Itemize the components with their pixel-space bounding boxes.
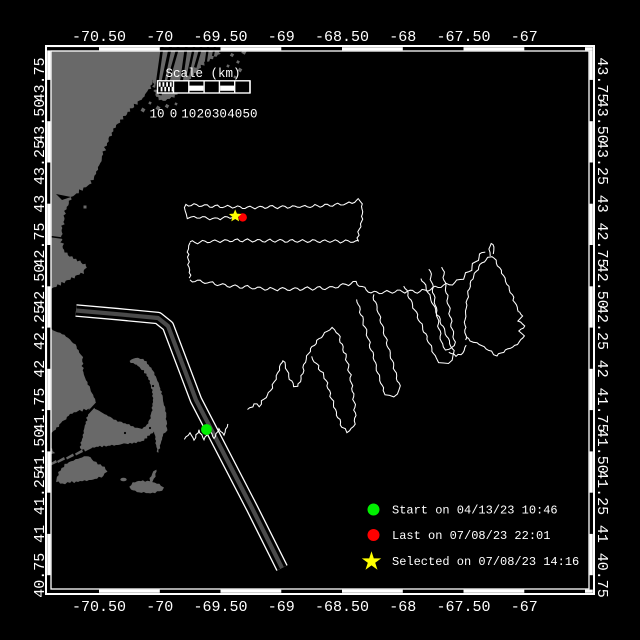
svg-text:-68: -68	[389, 599, 416, 616]
svg-text:40: 40	[227, 108, 242, 122]
svg-text:40.75: 40.75	[32, 553, 49, 598]
svg-text:42.50: 42.50	[32, 264, 49, 309]
svg-text:43.75: 43.75	[593, 57, 610, 102]
svg-text:20: 20	[197, 108, 212, 122]
svg-text:43.50: 43.50	[32, 99, 49, 144]
svg-text:Selected on 07/08/23 14:16: Selected on 07/08/23 14:16	[392, 555, 579, 569]
svg-text:0: 0	[170, 108, 178, 122]
svg-text:-70.50: -70.50	[72, 29, 126, 46]
svg-text:-69.50: -69.50	[193, 599, 247, 616]
svg-text:-67.50: -67.50	[436, 599, 490, 616]
svg-text:-69.50: -69.50	[193, 29, 247, 46]
svg-text:-70.50: -70.50	[72, 599, 126, 616]
svg-text:-70: -70	[146, 29, 173, 46]
svg-text:-70: -70	[146, 599, 173, 616]
svg-text:41.75: 41.75	[32, 388, 49, 433]
svg-text:42: 42	[593, 360, 610, 378]
svg-text:42.25: 42.25	[593, 305, 610, 350]
svg-text:42.25: 42.25	[32, 305, 49, 350]
svg-text:10: 10	[181, 108, 196, 122]
svg-text:-69: -69	[268, 29, 295, 46]
svg-text:-67: -67	[511, 599, 538, 616]
svg-text:41.50: 41.50	[593, 429, 610, 474]
svg-text:10: 10	[149, 108, 164, 122]
svg-text:30: 30	[212, 108, 227, 122]
svg-text:43.25: 43.25	[593, 140, 610, 185]
svg-text:Start on 04/13/23 10:46: Start on 04/13/23 10:46	[392, 504, 558, 518]
svg-text:42.50: 42.50	[593, 264, 610, 309]
svg-text:50: 50	[242, 108, 257, 122]
svg-text:40.75: 40.75	[593, 553, 610, 598]
svg-text:43.25: 43.25	[32, 140, 49, 185]
svg-text:42.75: 42.75	[32, 222, 49, 267]
svg-text:-69: -69	[268, 599, 295, 616]
svg-text:41.50: 41.50	[32, 429, 49, 474]
svg-text:Scale (km): Scale (km)	[165, 67, 240, 81]
svg-text:-68: -68	[389, 29, 416, 46]
svg-text:42.75: 42.75	[593, 222, 610, 267]
svg-text:-67.50: -67.50	[436, 29, 490, 46]
svg-text:43.75: 43.75	[32, 57, 49, 102]
svg-text:43.50: 43.50	[593, 99, 610, 144]
svg-text:41: 41	[32, 525, 49, 543]
svg-text:41: 41	[593, 525, 610, 543]
svg-text:-67: -67	[511, 29, 538, 46]
svg-text:-68.50: -68.50	[315, 599, 369, 616]
svg-text:-68.50: -68.50	[315, 29, 369, 46]
svg-text:41.25: 41.25	[593, 470, 610, 515]
svg-text:43: 43	[32, 195, 49, 213]
svg-text:41.75: 41.75	[593, 388, 610, 433]
svg-text:41.25: 41.25	[32, 470, 49, 515]
svg-text:43: 43	[593, 195, 610, 213]
svg-text:Last on 07/08/23 22:01: Last on 07/08/23 22:01	[392, 529, 550, 543]
svg-text:42: 42	[32, 360, 49, 378]
